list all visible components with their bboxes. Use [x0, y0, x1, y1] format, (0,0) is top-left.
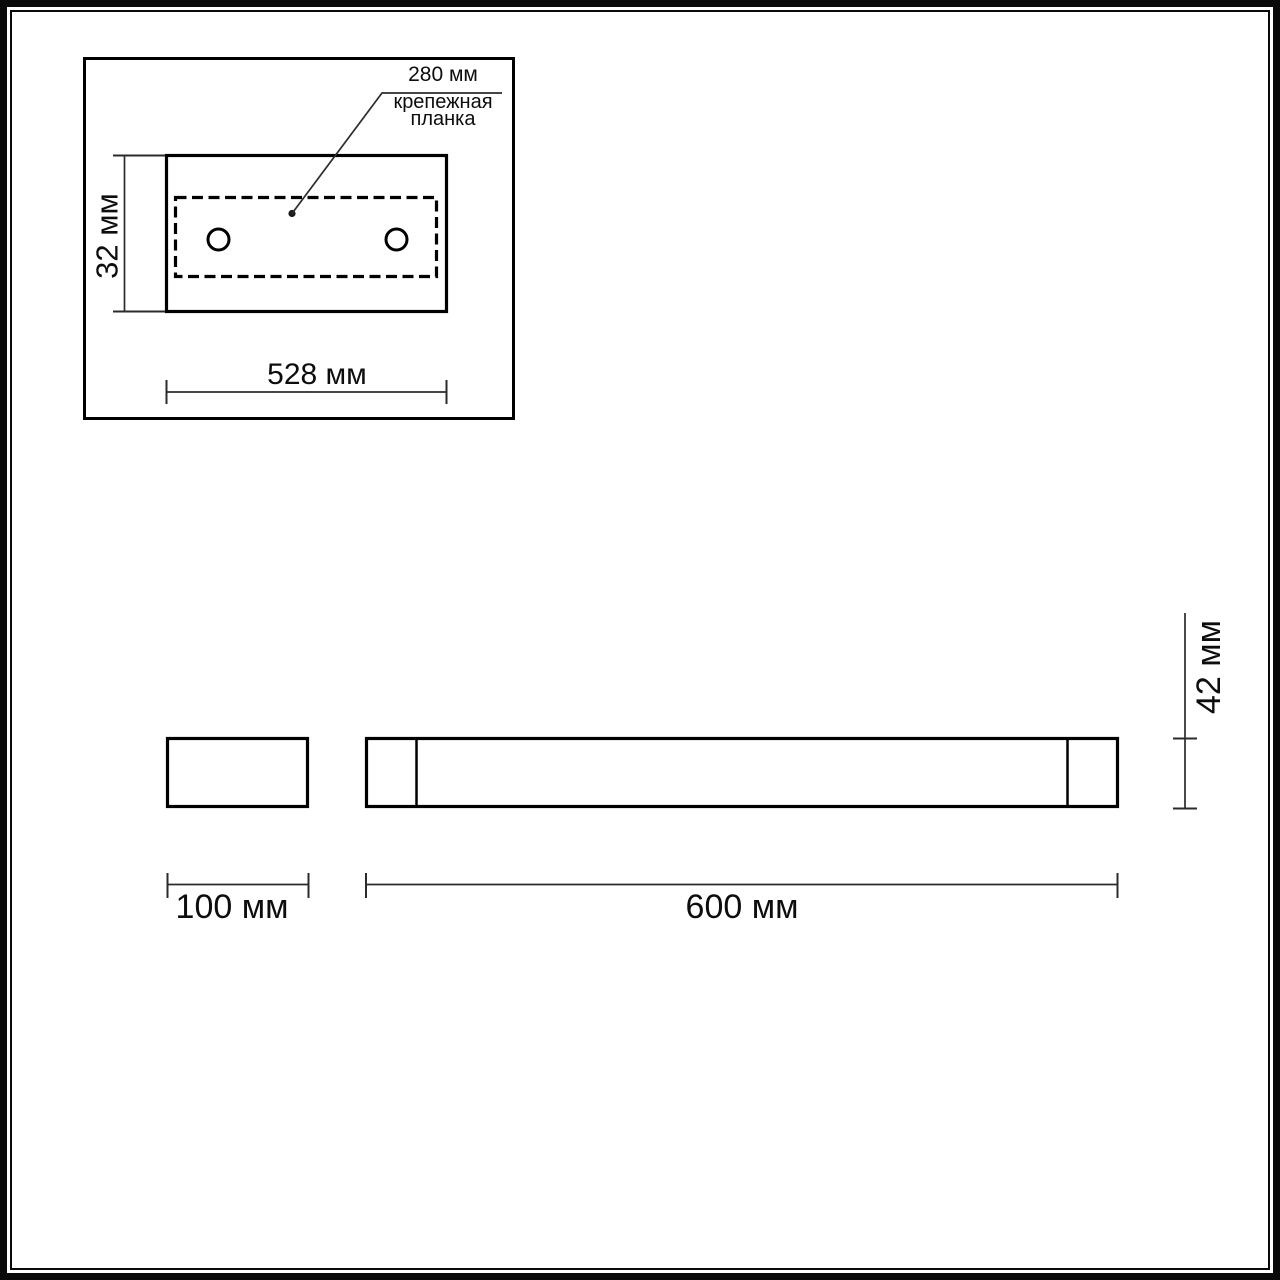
side-width-dimension-label: 100 мм — [162, 888, 302, 926]
front-width-dimension-label: 600 мм — [672, 888, 812, 926]
front-height-dimension-label: 42 мм — [1191, 597, 1227, 737]
front-view-outline — [367, 739, 1118, 807]
profile-drawing — [150, 600, 1220, 920]
screw-hole-right — [386, 229, 407, 250]
inset-height-dimension-label: 32 мм — [90, 166, 126, 307]
callout-spacing-label: 280 мм — [383, 62, 503, 87]
technical-drawing-page: 280 мм крепежная планка 32 мм 528 мм 100… — [0, 0, 1280, 1280]
screw-hole-left — [208, 229, 229, 250]
inset-width-dimension-label: 528 мм — [237, 358, 397, 392]
side-view-outline — [168, 739, 308, 807]
mounting-bracket-label: крепежная планка — [383, 94, 503, 128]
mounting-bracket-label-line2: планка — [383, 111, 503, 128]
